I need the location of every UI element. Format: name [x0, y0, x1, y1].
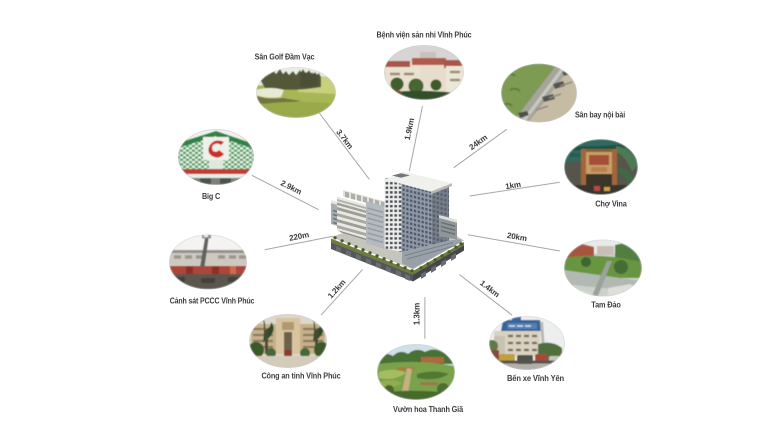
svg-text:Sân Golf Đầm Vạc: Sân Golf Đầm Vạc: [255, 53, 315, 62]
svg-text:1.9km: 1.9km: [403, 117, 416, 141]
svg-text:Tam Đảo: Tam Đảo: [591, 301, 621, 310]
svg-text:24km: 24km: [468, 133, 490, 152]
svg-text:Cảnh sát PCCC Vĩnh Phúc: Cảnh sát PCCC Vĩnh Phúc: [170, 297, 255, 306]
svg-text:Bệnh viện sản nhi Vĩnh Phúc: Bệnh viện sản nhi Vĩnh Phúc: [377, 31, 473, 40]
svg-text:Chợ Vina: Chợ Vina: [595, 200, 627, 209]
svg-text:20km: 20km: [506, 231, 527, 243]
svg-text:1km: 1km: [505, 180, 522, 191]
svg-text:Big C: Big C: [202, 192, 220, 201]
svg-text:1.4km: 1.4km: [478, 279, 501, 300]
svg-text:Bến xe Vĩnh Yên: Bến xe Vĩnh Yên: [507, 374, 564, 383]
svg-text:220m: 220m: [288, 230, 309, 243]
svg-text:2.9km: 2.9km: [279, 178, 303, 196]
svg-text:Vườn hoa Thanh Giã: Vườn hoa Thanh Giã: [393, 405, 464, 414]
svg-text:1.3km: 1.3km: [413, 303, 422, 325]
svg-text:Công an tỉnh Vĩnh Phúc: Công an tỉnh Vĩnh Phúc: [261, 372, 341, 381]
svg-text:Sân bay nội bài: Sân bay nội bài: [575, 111, 625, 120]
svg-text:3.7km: 3.7km: [334, 128, 355, 151]
